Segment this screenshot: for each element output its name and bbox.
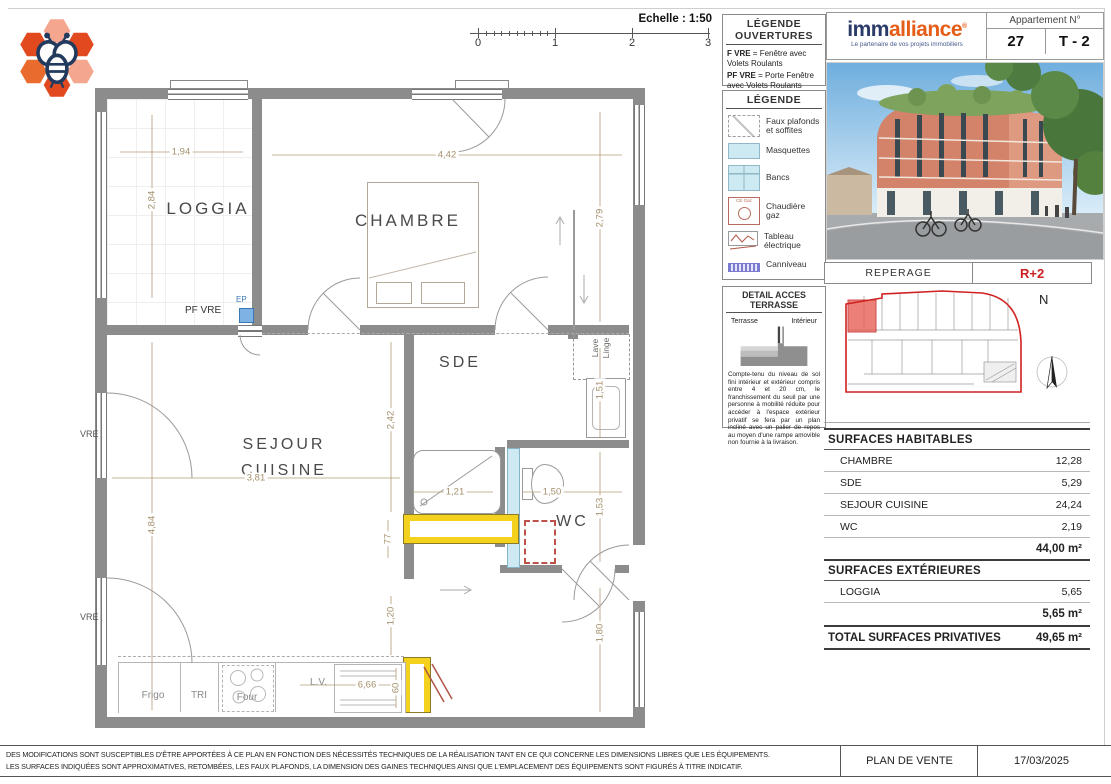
- apartment-type: T - 2: [1045, 29, 1104, 54]
- pf-vre-label: PF VRE: [185, 305, 221, 316]
- canniveau-icon: [728, 263, 760, 272]
- detail-text: Compte-tenu du niveau de sol fini intéri…: [723, 369, 825, 449]
- dimension-label: 6,66: [356, 680, 379, 691]
- legend-ouvertures: LÉGENDE OUVERTURES F VRE = Fenêtre avec …: [722, 14, 826, 86]
- table-row: WC2,19: [824, 516, 1090, 538]
- vre-label: VRE: [80, 612, 99, 622]
- section-labels: Terrasse Intérieur: [723, 316, 825, 325]
- room-label-sejour: SEJOUR: [224, 436, 344, 454]
- exterieures-total: 5,65 m²: [824, 603, 1090, 624]
- ep-label: EP: [236, 295, 247, 304]
- brand-tagline: Le partenaire de vos projets immobiliers: [827, 41, 987, 48]
- lave-linge-label: Lave Linge: [590, 326, 614, 370]
- plan-de-vente-sheet: Echelle : 1:50 0 1 2 3: [0, 0, 1111, 784]
- dimension-label: 1,94: [170, 147, 193, 158]
- bancs-icon: [728, 165, 760, 191]
- table-row: LOGGIA5,65: [824, 581, 1090, 603]
- reperage-label: REPERAGE: [825, 263, 972, 283]
- legend-item: PF VRE = Porte Fenêtre avec Volets Roula…: [723, 70, 825, 92]
- footer-bar: DES MODIFICATIONS SONT SUSCEPTIBLES D'ÊT…: [0, 745, 1111, 777]
- dimension-label: 1,53: [595, 496, 606, 519]
- lv-label: L.V.: [310, 677, 327, 688]
- tri-label: TRI: [180, 690, 218, 701]
- surfaces-exterieures-title: SURFACES EXTÉRIEURES: [824, 559, 1090, 581]
- total-surfaces-row: TOTAL SURFACES PRIVATIVES49,65 m²: [824, 625, 1090, 650]
- legend-item: Canniveau: [723, 254, 825, 275]
- masquettes-icon: [728, 143, 760, 159]
- room-label-sde: SDE: [430, 354, 490, 372]
- north-label: N: [1039, 292, 1048, 307]
- dimension-label: 1,21: [444, 487, 467, 498]
- room-label-cuisine: CUISINE: [224, 462, 344, 480]
- habitables-total: 44,00 m²: [824, 538, 1090, 559]
- dimension-label: 1,51: [595, 379, 606, 402]
- surfaces-habitables-title: SURFACES HABITABLES: [824, 428, 1090, 450]
- legend-item: Faux plafonds et soffites: [723, 112, 825, 140]
- reperage-floor: R+2: [972, 263, 1091, 283]
- key-plan: N: [824, 284, 1090, 423]
- dimension-label: 77: [383, 532, 394, 547]
- terrasse-section-diagram: [727, 325, 821, 369]
- building-render: [826, 62, 1104, 260]
- four-label: Four: [222, 692, 272, 703]
- legend: LÉGENDE Faux plafonds et soffites Masque…: [722, 90, 826, 280]
- room-label-chambre: CHAMBRE: [348, 211, 468, 231]
- date-cell: 17/03/2025: [977, 746, 1105, 776]
- table-row: SEJOUR CUISINE24,24: [824, 494, 1090, 516]
- doc-type-cell: PLAN DE VENTE: [840, 746, 978, 776]
- frigo-label: Frigo: [128, 690, 178, 701]
- dimension-label: 4,84: [147, 514, 158, 537]
- legend-item: Bancs: [723, 162, 825, 194]
- room-label-loggia: LOGGIA: [148, 199, 268, 219]
- dimension-label: 2,42: [386, 409, 397, 432]
- dimension-label: 60: [391, 681, 402, 696]
- legend-item: CE Gaz Chaudière gaz: [723, 194, 825, 228]
- detail-title: DETAIL ACCES TERRASSE: [727, 290, 821, 310]
- dimension-label: 1,50: [541, 487, 564, 498]
- legend-item: F VRE = Fenêtre avec Volets Roulants: [723, 48, 825, 70]
- vre-label: VRE: [80, 429, 99, 439]
- legend-title: LÉGENDE: [727, 94, 821, 106]
- disclaimer: DES MODIFICATIONS SONT SUSCEPTIBLES D'ÊT…: [6, 749, 838, 772]
- legend-item: Masquettes: [723, 140, 825, 162]
- apartment-number: 27: [987, 29, 1045, 54]
- dimension-label: 3,81: [245, 473, 268, 484]
- chaudiere-gaz-icon: CE Gaz: [728, 197, 760, 225]
- legend-item: Tableau électrique: [723, 228, 825, 254]
- detail-acces-terrasse: DETAIL ACCES TERRASSE Terrasse Intérieur…: [722, 286, 826, 428]
- table-row: CHAMBRE12,28: [824, 450, 1090, 472]
- apartment-label: Appartement N°: [987, 13, 1103, 29]
- legend-ouvertures-title: LÉGENDE: [727, 18, 821, 30]
- reperage-bar: REPERAGE R+2: [824, 262, 1092, 284]
- brand-wordmark: immalliance®: [827, 18, 987, 42]
- dimension-label: 4,42: [436, 150, 459, 161]
- dimension-label: 2,79: [595, 207, 606, 230]
- dimension-label: 1,20: [386, 605, 397, 628]
- table-row: SDE5,29: [824, 472, 1090, 494]
- surfaces-table: SURFACES HABITABLES CHAMBRE12,28 SDE5,29…: [824, 428, 1090, 650]
- apartment-box: Appartement N° 27 T - 2: [986, 12, 1104, 60]
- room-label-wc: WC: [545, 513, 600, 531]
- brand-box: immalliance® Le partenaire de vos projet…: [826, 12, 988, 60]
- tableau-electrique-icon: [728, 231, 758, 251]
- dimension-label: 1,80: [595, 622, 606, 645]
- dimension-label: 2,84: [147, 189, 158, 212]
- faux-plafonds-icon: [728, 115, 760, 137]
